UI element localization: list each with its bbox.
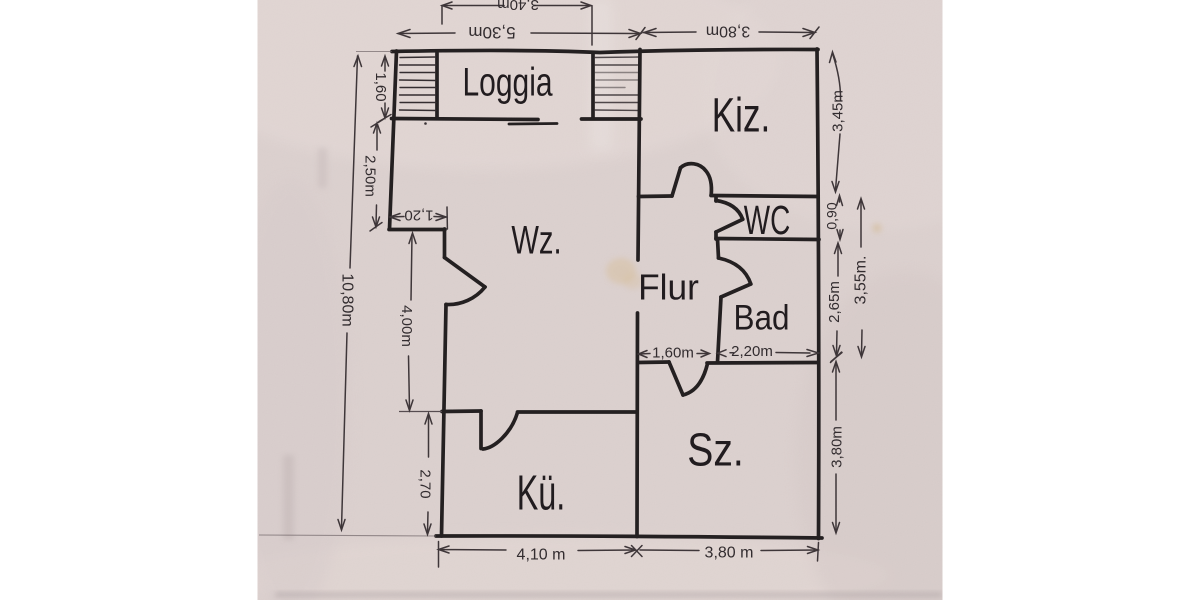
svg-text:Flur: Flur [638,267,699,307]
svg-text:1,20: 1,20 [404,206,433,223]
svg-text:1,60: 1,60 [372,72,389,101]
svg-text:2,65m: 2,65m [826,281,843,323]
svg-text:3,80m: 3,80m [828,426,845,468]
svg-text:WC: WC [744,198,790,244]
svg-text:3,55m.: 3,55m. [853,256,870,305]
svg-text:4,10 m: 4,10 m [517,547,566,564]
svg-text:2,20m: 2,20m [731,343,773,360]
svg-text:3,45m: 3,45m [829,90,846,132]
svg-text:10,80m: 10,80m [338,273,355,326]
svg-text:5,30m: 5,30m [468,23,515,42]
svg-text:Sz.: Sz. [687,425,743,477]
svg-text:3,80m: 3,80m [706,22,750,39]
svg-text:4,00m: 4,00m [398,305,415,347]
svg-text:2,70: 2,70 [416,469,433,498]
svg-text:2,50m: 2,50m [361,155,378,197]
svg-text:3,40m: 3,40m [497,0,539,13]
svg-text:Loggia: Loggia [462,60,552,104]
svg-text:Bad: Bad [733,299,789,338]
svg-text:3,80 m: 3,80 m [705,545,754,562]
svg-text:Kü.: Kü. [517,465,566,520]
svg-text:1,60m: 1,60m [652,344,694,361]
svg-text:Wz.: Wz. [511,218,561,263]
svg-text:0,90: 0,90 [823,202,839,229]
svg-text:Kiz.: Kiz. [712,88,770,142]
